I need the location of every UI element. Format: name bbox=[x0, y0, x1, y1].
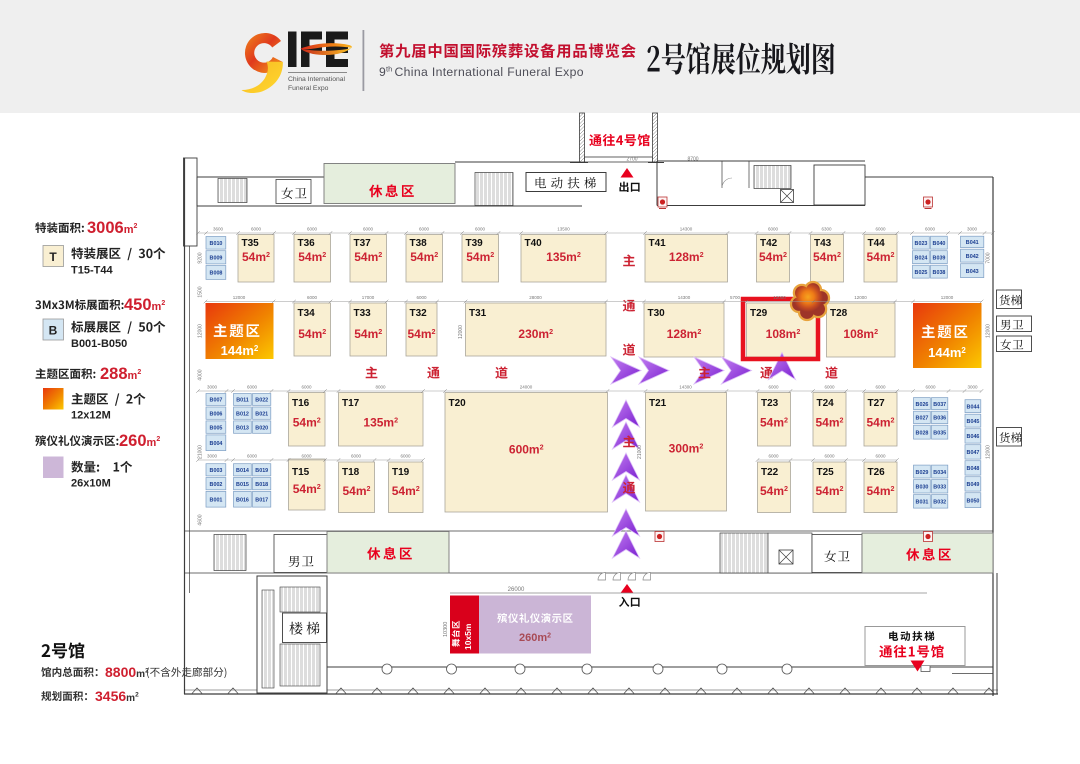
svg-text:B035: B035 bbox=[933, 430, 946, 436]
svg-text:54m2: 54m2 bbox=[866, 484, 894, 498]
svg-text:260m2: 260m2 bbox=[119, 432, 160, 450]
svg-text:6000: 6000 bbox=[351, 454, 362, 459]
svg-text:54m2: 54m2 bbox=[298, 327, 326, 341]
svg-text:54m2: 54m2 bbox=[354, 250, 382, 264]
svg-text:T16: T16 bbox=[292, 398, 310, 409]
svg-text:B012: B012 bbox=[236, 411, 249, 417]
svg-text:B047: B047 bbox=[967, 450, 980, 456]
svg-text:6000: 6000 bbox=[419, 227, 430, 232]
svg-text:B017: B017 bbox=[255, 497, 268, 503]
svg-text:6000: 6000 bbox=[824, 385, 835, 390]
svg-text:6000: 6000 bbox=[768, 454, 779, 459]
svg-text:T38: T38 bbox=[410, 238, 428, 249]
svg-text:B041: B041 bbox=[966, 240, 979, 246]
svg-text:T32: T32 bbox=[410, 308, 428, 319]
svg-text:T30: T30 bbox=[648, 308, 666, 319]
svg-text:B038: B038 bbox=[933, 270, 946, 276]
svg-text:5700: 5700 bbox=[730, 295, 741, 300]
svg-text:B049: B049 bbox=[967, 482, 980, 488]
svg-text:B011: B011 bbox=[236, 398, 249, 404]
svg-text:14300: 14300 bbox=[679, 385, 692, 390]
svg-text:T31: T31 bbox=[469, 308, 487, 319]
svg-text:13500: 13500 bbox=[557, 227, 570, 232]
svg-text:T23: T23 bbox=[761, 398, 779, 409]
svg-text:17000: 17000 bbox=[362, 295, 375, 300]
svg-text:21000: 21000 bbox=[198, 445, 204, 459]
svg-text:21000: 21000 bbox=[637, 445, 643, 459]
svg-text:9200: 9200 bbox=[198, 252, 204, 263]
svg-text:T36: T36 bbox=[298, 238, 316, 249]
svg-text:6000: 6000 bbox=[925, 227, 936, 232]
svg-text:6000: 6000 bbox=[301, 454, 312, 459]
svg-text:B037: B037 bbox=[933, 402, 946, 408]
svg-text:54m2: 54m2 bbox=[760, 416, 788, 430]
svg-text:B042: B042 bbox=[966, 254, 979, 260]
svg-text:9: 9 bbox=[379, 65, 386, 79]
svg-text:128m2: 128m2 bbox=[669, 250, 704, 264]
svg-text:T20: T20 bbox=[449, 398, 467, 409]
svg-text:6000: 6000 bbox=[301, 385, 312, 390]
svg-text:B015: B015 bbox=[236, 482, 249, 488]
svg-text:B: B bbox=[49, 324, 58, 338]
svg-text:T: T bbox=[49, 250, 57, 264]
svg-text:6000: 6000 bbox=[824, 454, 835, 459]
svg-text:B050: B050 bbox=[967, 498, 980, 504]
svg-text:T26: T26 bbox=[868, 467, 886, 478]
svg-text:T27: T27 bbox=[868, 398, 886, 409]
svg-text:2700: 2700 bbox=[626, 157, 637, 163]
svg-text:3000: 3000 bbox=[207, 385, 218, 390]
svg-text:24000: 24000 bbox=[520, 385, 533, 390]
svg-text:54m2: 54m2 bbox=[813, 250, 841, 264]
svg-text:B002: B002 bbox=[210, 482, 223, 488]
svg-text:12000: 12000 bbox=[198, 324, 204, 338]
svg-text:T42: T42 bbox=[760, 238, 778, 249]
svg-text:300m2: 300m2 bbox=[669, 442, 704, 456]
svg-text:B001: B001 bbox=[210, 497, 223, 503]
svg-text:B046: B046 bbox=[967, 434, 980, 440]
svg-text:54m2: 54m2 bbox=[293, 416, 321, 430]
svg-text:10300: 10300 bbox=[443, 622, 449, 637]
svg-text:B016: B016 bbox=[236, 497, 249, 503]
svg-text:12000: 12000 bbox=[458, 325, 464, 339]
svg-text:B030: B030 bbox=[916, 485, 929, 491]
svg-text:B023: B023 bbox=[915, 241, 928, 247]
svg-text:B019: B019 bbox=[255, 468, 268, 474]
svg-text:B027: B027 bbox=[916, 416, 929, 422]
svg-text:6000: 6000 bbox=[247, 385, 258, 390]
svg-text:T34: T34 bbox=[298, 308, 316, 319]
svg-text:144m2: 144m2 bbox=[221, 343, 259, 358]
svg-text:6000: 6000 bbox=[768, 385, 779, 390]
svg-text:54m2: 54m2 bbox=[815, 416, 843, 430]
svg-text:T35: T35 bbox=[242, 238, 260, 249]
svg-text:B020: B020 bbox=[255, 425, 268, 431]
svg-text:7000: 7000 bbox=[986, 252, 992, 263]
svg-text:T24: T24 bbox=[817, 398, 835, 409]
svg-text:T40: T40 bbox=[525, 238, 543, 249]
svg-text:6000: 6000 bbox=[307, 227, 318, 232]
svg-text:3000: 3000 bbox=[967, 227, 978, 232]
svg-text:T37: T37 bbox=[354, 238, 372, 249]
svg-text:T28: T28 bbox=[830, 308, 848, 319]
svg-text:260m2: 260m2 bbox=[519, 632, 551, 644]
svg-text:T17: T17 bbox=[342, 398, 360, 409]
svg-text:B025: B025 bbox=[915, 270, 928, 276]
svg-text:6000: 6000 bbox=[307, 295, 318, 300]
svg-text:135m2: 135m2 bbox=[363, 416, 398, 430]
svg-text:T18: T18 bbox=[342, 467, 360, 478]
svg-text:T39: T39 bbox=[466, 238, 484, 249]
svg-text:450m2: 450m2 bbox=[124, 296, 165, 314]
svg-text:14300: 14300 bbox=[680, 227, 693, 232]
svg-text:T29: T29 bbox=[750, 308, 768, 319]
svg-text:8800m2: 8800m2 bbox=[105, 664, 149, 680]
svg-text:B008: B008 bbox=[210, 271, 223, 277]
svg-text:B014: B014 bbox=[236, 468, 249, 474]
svg-text:128m2: 128m2 bbox=[667, 327, 702, 341]
svg-text:54m2: 54m2 bbox=[242, 250, 270, 264]
svg-text:B040: B040 bbox=[933, 241, 946, 247]
svg-text:T15: T15 bbox=[292, 467, 310, 478]
svg-text:10x5m: 10x5m bbox=[463, 623, 473, 650]
svg-text:54m2: 54m2 bbox=[298, 250, 326, 264]
svg-text:B044: B044 bbox=[967, 404, 980, 410]
svg-text:12000: 12000 bbox=[941, 295, 954, 300]
svg-text:8000: 8000 bbox=[375, 385, 386, 390]
svg-text:12000: 12000 bbox=[854, 295, 867, 300]
svg-text:T44: T44 bbox=[868, 238, 886, 249]
svg-text:T41: T41 bbox=[649, 238, 667, 249]
svg-text:288m2: 288m2 bbox=[100, 365, 141, 383]
svg-text:3000: 3000 bbox=[967, 385, 978, 390]
svg-text:6000: 6000 bbox=[768, 227, 779, 232]
svg-text:T22: T22 bbox=[761, 467, 779, 478]
svg-text:12x12M: 12x12M bbox=[71, 410, 111, 422]
svg-text:26x10M: 26x10M bbox=[71, 478, 111, 490]
svg-text:B043: B043 bbox=[966, 269, 979, 275]
svg-text:3600: 3600 bbox=[213, 227, 224, 232]
svg-text:230m2: 230m2 bbox=[518, 327, 553, 341]
svg-text:6000: 6000 bbox=[247, 454, 258, 459]
svg-text:12000: 12000 bbox=[986, 324, 992, 338]
svg-text:B028: B028 bbox=[916, 430, 929, 436]
svg-text:China International: China International bbox=[288, 76, 346, 83]
svg-text:B009: B009 bbox=[210, 256, 223, 262]
svg-text:54m2: 54m2 bbox=[866, 250, 894, 264]
svg-text:54m2: 54m2 bbox=[407, 327, 435, 341]
svg-text:1500: 1500 bbox=[198, 286, 204, 297]
svg-text:B021: B021 bbox=[255, 411, 268, 417]
svg-text:6000: 6000 bbox=[875, 454, 886, 459]
svg-text:4600: 4600 bbox=[198, 514, 204, 525]
svg-text:54m2: 54m2 bbox=[410, 250, 438, 264]
svg-text:Funeral Expo: Funeral Expo bbox=[288, 85, 329, 92]
svg-text:th: th bbox=[386, 65, 392, 74]
svg-text:B001-B050: B001-B050 bbox=[71, 338, 127, 350]
svg-text:B013: B013 bbox=[236, 425, 249, 431]
svg-text:B004: B004 bbox=[210, 441, 223, 447]
svg-text:B007: B007 bbox=[210, 398, 223, 404]
svg-text:T19: T19 bbox=[392, 467, 410, 478]
svg-text:14300: 14300 bbox=[678, 295, 691, 300]
svg-text:B032: B032 bbox=[933, 500, 946, 506]
svg-text:26000: 26000 bbox=[508, 587, 525, 593]
svg-text:12000: 12000 bbox=[773, 295, 786, 300]
svg-text:B003: B003 bbox=[210, 468, 223, 474]
svg-text:54m2: 54m2 bbox=[293, 482, 321, 496]
svg-text:54m2: 54m2 bbox=[759, 250, 787, 264]
svg-text:54m2: 54m2 bbox=[760, 484, 788, 498]
svg-text:6000: 6000 bbox=[251, 227, 262, 232]
svg-text:600m2: 600m2 bbox=[509, 443, 544, 457]
svg-text:B033: B033 bbox=[933, 485, 946, 491]
svg-text:6300: 6300 bbox=[821, 227, 832, 232]
svg-text:54m2: 54m2 bbox=[392, 484, 420, 498]
svg-text:135m2: 135m2 bbox=[546, 250, 581, 264]
svg-text:3006m2: 3006m2 bbox=[87, 219, 138, 237]
svg-text:4000: 4000 bbox=[198, 369, 204, 380]
svg-text:54m2: 54m2 bbox=[342, 484, 370, 498]
svg-text:6000: 6000 bbox=[925, 385, 936, 390]
svg-text:6000: 6000 bbox=[400, 454, 411, 459]
svg-text:6000: 6000 bbox=[363, 227, 374, 232]
svg-text:108m2: 108m2 bbox=[766, 327, 801, 341]
svg-text:B005: B005 bbox=[210, 425, 223, 431]
svg-text:B039: B039 bbox=[933, 255, 946, 261]
svg-text:T43: T43 bbox=[814, 238, 832, 249]
svg-text:54m2: 54m2 bbox=[815, 484, 843, 498]
svg-text:B034: B034 bbox=[933, 470, 946, 476]
svg-text:B045: B045 bbox=[967, 419, 980, 425]
svg-text:12000: 12000 bbox=[233, 295, 246, 300]
svg-text:6000: 6000 bbox=[416, 295, 427, 300]
svg-text:B036: B036 bbox=[933, 416, 946, 422]
svg-text:6000: 6000 bbox=[475, 227, 486, 232]
svg-text:12000: 12000 bbox=[986, 445, 992, 459]
svg-text:China International Funeral Ex: China International Funeral Expo bbox=[395, 65, 584, 79]
svg-text:3000: 3000 bbox=[207, 454, 218, 459]
svg-text:B029: B029 bbox=[916, 470, 929, 476]
svg-text:B048: B048 bbox=[967, 466, 980, 472]
svg-text:B010: B010 bbox=[210, 241, 223, 247]
svg-text:T25: T25 bbox=[817, 467, 835, 478]
svg-text:144m2: 144m2 bbox=[928, 345, 966, 360]
svg-text:108m2: 108m2 bbox=[843, 327, 878, 341]
svg-text:3456m2: 3456m2 bbox=[95, 688, 139, 704]
svg-text:54m2: 54m2 bbox=[866, 416, 894, 430]
svg-text:B006: B006 bbox=[210, 411, 223, 417]
svg-text:B031: B031 bbox=[916, 500, 929, 506]
svg-text:8700: 8700 bbox=[687, 157, 698, 163]
svg-text:T33: T33 bbox=[354, 308, 372, 319]
svg-text:54m2: 54m2 bbox=[354, 327, 382, 341]
svg-text:T21: T21 bbox=[649, 398, 667, 409]
svg-text:B026: B026 bbox=[916, 402, 929, 408]
svg-text:28000: 28000 bbox=[529, 295, 542, 300]
svg-text:6000: 6000 bbox=[875, 227, 886, 232]
svg-text:54m2: 54m2 bbox=[466, 250, 494, 264]
svg-text:6000: 6000 bbox=[875, 385, 886, 390]
svg-text:T15-T44: T15-T44 bbox=[71, 265, 113, 277]
svg-text:B024: B024 bbox=[915, 255, 928, 261]
svg-text:B018: B018 bbox=[255, 482, 268, 488]
svg-text:B022: B022 bbox=[255, 398, 268, 404]
